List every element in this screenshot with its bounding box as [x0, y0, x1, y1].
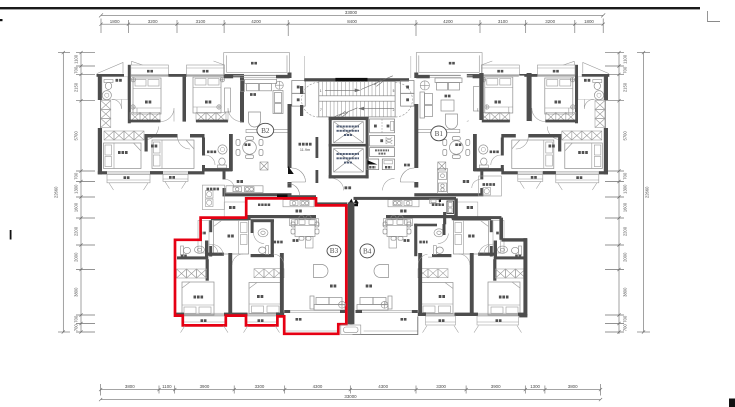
svg-text:700: 700	[623, 66, 628, 74]
svg-text:1100: 1100	[162, 384, 172, 389]
svg-text:3800: 3800	[125, 384, 135, 389]
svg-text:2150: 2150	[74, 82, 79, 92]
svg-text:1300: 1300	[74, 184, 79, 194]
svg-text:1800: 1800	[110, 19, 120, 24]
svg-text:700: 700	[74, 172, 79, 180]
svg-text:3100: 3100	[196, 19, 206, 24]
svg-text:3300: 3300	[436, 384, 446, 389]
svg-text:22660: 22660	[54, 186, 59, 198]
svg-text:4200: 4200	[251, 19, 261, 24]
svg-text:700: 700	[74, 66, 79, 74]
svg-text:3200: 3200	[545, 19, 555, 24]
svg-text:2000: 2000	[623, 252, 628, 262]
svg-text:8400: 8400	[347, 19, 357, 24]
svg-text:7: 7	[320, 108, 322, 112]
svg-text:11.9m: 11.9m	[300, 148, 310, 152]
svg-text:1100: 1100	[74, 54, 79, 64]
svg-text:700: 700	[623, 172, 628, 180]
svg-text:3800: 3800	[568, 384, 578, 389]
svg-text:B2: B2	[261, 127, 270, 135]
svg-text:700: 700	[74, 315, 79, 323]
svg-text:3900: 3900	[200, 384, 210, 389]
svg-text:5700: 5700	[74, 130, 79, 140]
svg-text:1300: 1300	[530, 384, 540, 389]
svg-text:2: 2	[393, 108, 395, 112]
svg-text:2200: 2200	[74, 226, 79, 236]
svg-text:2000: 2000	[74, 252, 79, 262]
svg-text:2200: 2200	[623, 226, 628, 236]
svg-text:1600: 1600	[74, 202, 79, 212]
svg-text:700: 700	[623, 324, 628, 332]
svg-text:22660: 22660	[645, 186, 650, 198]
svg-text:2150: 2150	[623, 82, 628, 92]
svg-text:3300: 3300	[255, 384, 265, 389]
svg-text:3200: 3200	[148, 19, 158, 24]
svg-text:1: 1	[320, 89, 322, 93]
svg-text:4200: 4200	[443, 19, 453, 24]
svg-text:3100: 3100	[498, 19, 508, 24]
svg-text:4300: 4300	[313, 384, 323, 389]
svg-text:700: 700	[623, 315, 628, 323]
svg-text:B3: B3	[330, 247, 339, 255]
svg-text:3900: 3900	[491, 384, 501, 389]
svg-text:1300: 1300	[623, 184, 628, 194]
svg-text:33000: 33000	[345, 10, 358, 15]
svg-text:3800: 3800	[623, 287, 628, 297]
svg-text:700: 700	[74, 324, 79, 332]
svg-text:B4: B4	[363, 247, 372, 255]
svg-text:3800: 3800	[74, 287, 79, 297]
svg-text:4300: 4300	[378, 384, 388, 389]
svg-text:1100: 1100	[623, 54, 628, 64]
svg-text:1800: 1800	[584, 19, 594, 24]
svg-text:B1: B1	[435, 130, 444, 138]
svg-text:33000: 33000	[344, 394, 357, 399]
svg-text:5: 5	[393, 89, 395, 93]
svg-text:1600: 1600	[623, 202, 628, 212]
svg-text:5700: 5700	[623, 130, 628, 140]
